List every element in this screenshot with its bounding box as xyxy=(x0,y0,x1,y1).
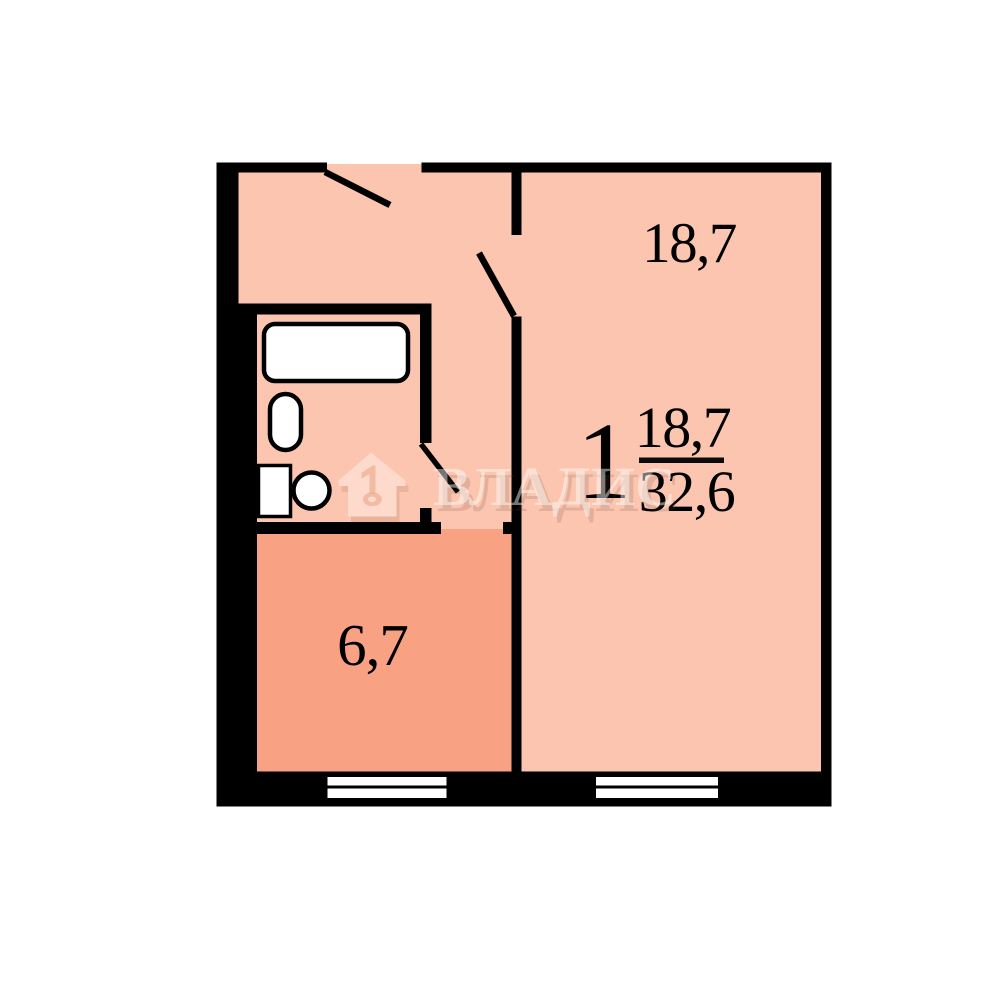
svg-text:18,7: 18,7 xyxy=(635,395,731,460)
svg-text:ВЛАДИС: ВЛАДИС xyxy=(433,456,676,517)
svg-text:18,7: 18,7 xyxy=(642,212,736,275)
svg-text:6,7: 6,7 xyxy=(337,612,408,678)
